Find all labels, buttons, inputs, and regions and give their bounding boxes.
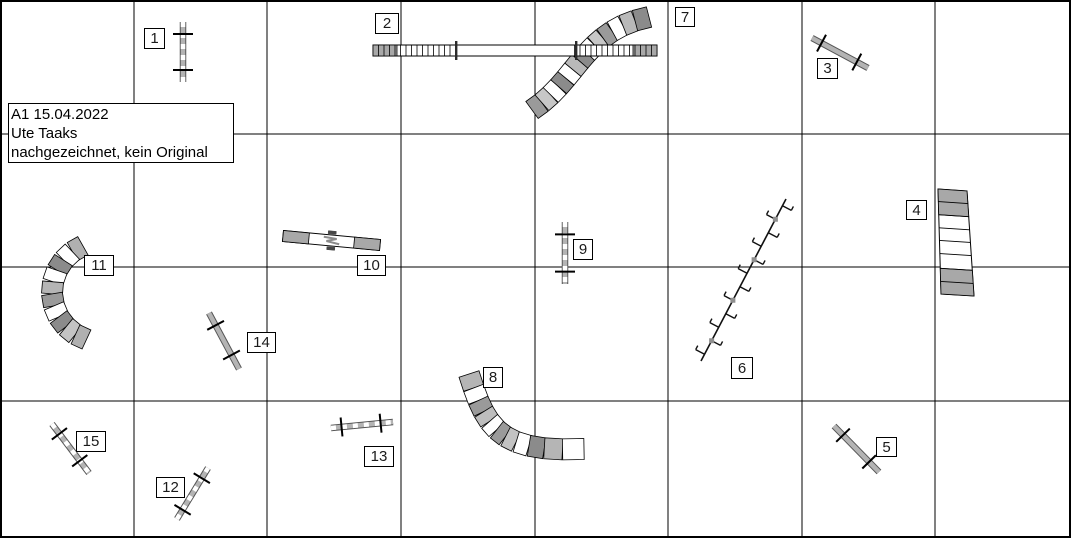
obstacle-label-11: 11 [84,255,114,276]
obstacle-label-13: 13 [364,446,394,467]
obstacle-label-3: 3 [817,58,838,79]
obstacle-label-4: 4 [906,200,927,220]
obstacle-label-5: 5 [876,437,897,457]
obstacle-label-10: 10 [357,255,386,276]
obstacle-label-7: 7 [675,7,695,27]
course-map: A1 15.04.2022 Ute Taaks nachgezeichnet, … [0,0,1071,538]
obstacle-label-9: 9 [573,239,593,260]
course-info-box: A1 15.04.2022 Ute Taaks nachgezeichnet, … [8,103,234,163]
course-author: Ute Taaks [11,124,230,143]
obstacle-label-12: 12 [156,477,185,498]
obstacle-label-1: 1 [144,28,165,49]
obstacle-label-14: 14 [247,332,276,353]
obstacle-label-6: 6 [731,357,753,379]
course-diagram-svg [2,2,1069,536]
obstacle-label-8: 8 [483,367,503,388]
course-note: nachgezeichnet, kein Original [11,143,230,162]
obstacle-label-2: 2 [375,13,399,34]
course-class-and-date: A1 15.04.2022 [11,105,230,124]
obstacle-label-15: 15 [76,431,106,452]
